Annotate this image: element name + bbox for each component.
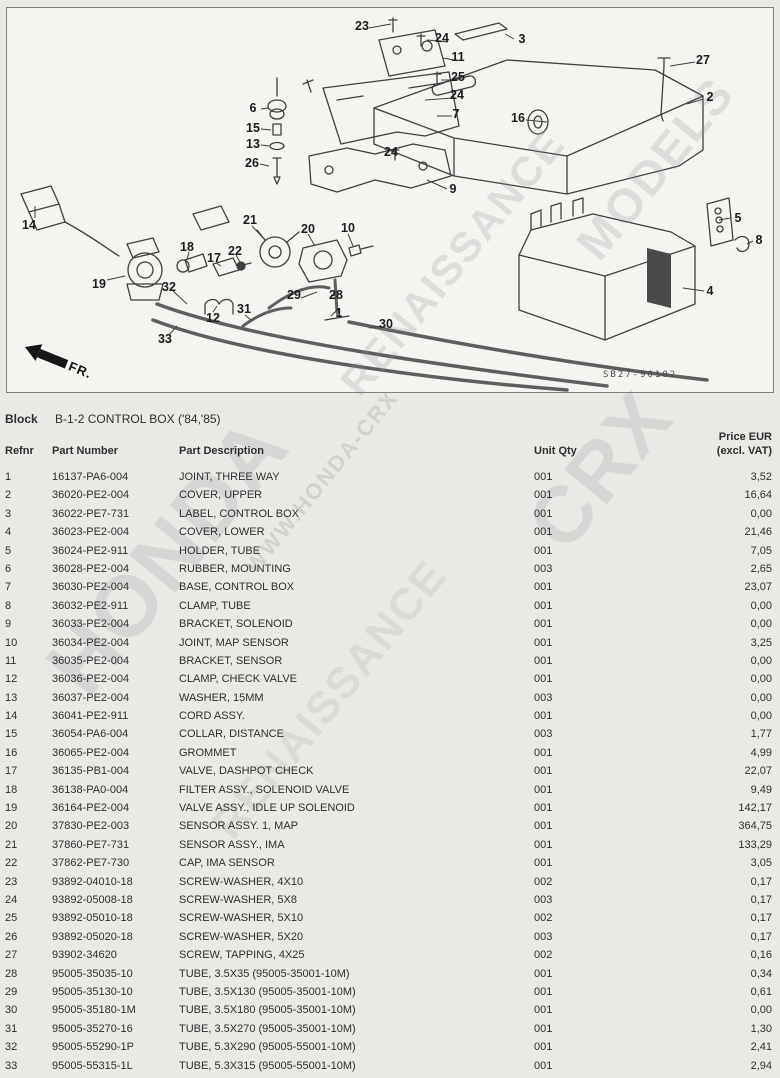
- callout-1: 1: [336, 306, 343, 320]
- cell-part-number: 36034-PE2-004: [52, 634, 179, 652]
- cell-qty: 001: [534, 836, 616, 854]
- cell-price: 21,46: [616, 523, 772, 541]
- cell-qty: 001: [534, 965, 616, 983]
- callout-22: 22: [228, 244, 242, 258]
- callout-5: 5: [735, 211, 742, 225]
- callout-6: 6: [250, 101, 257, 115]
- callout-21: 21: [243, 213, 257, 227]
- cell-part-number: 36032-PE2-911: [52, 597, 179, 615]
- table-row: 33 95005-55315-1L TUBE, 5.3X315 (95005-5…: [5, 1057, 772, 1075]
- table-row: 9 36033-PE2-004 BRACKET, SOLENOID 001 0,…: [5, 615, 772, 633]
- cell-part-number: 95005-55315-1L: [52, 1057, 179, 1075]
- cell-description: BRACKET, SOLENOID: [179, 615, 534, 633]
- cell-part-number: 95005-35180-1M: [52, 1001, 179, 1019]
- table-row: 2 36020-PE2-004 COVER, UPPER 001 16,64: [5, 486, 772, 504]
- cell-refnr: 2: [5, 486, 52, 504]
- cell-price: 0,17: [616, 891, 772, 909]
- cell-part-number: 95005-35130-10: [52, 983, 179, 1001]
- cell-description: SCREW-WASHER, 5X10: [179, 909, 534, 927]
- cell-part-number: 95005-55290-1P: [52, 1038, 179, 1056]
- cell-qty: 003: [534, 891, 616, 909]
- cell-part-number: 16137-PA6-004: [52, 468, 179, 486]
- cell-description: TUBE, 5.3X315 (95005-55001-10M): [179, 1057, 534, 1075]
- cell-description: SCREW, TAPPING, 4X25: [179, 946, 534, 964]
- callout-23: 23: [355, 19, 369, 33]
- header-refnr: Refnr: [5, 444, 52, 458]
- cell-qty: 003: [534, 928, 616, 946]
- cell-part-number: 37860-PE7-731: [52, 836, 179, 854]
- cell-qty: 003: [534, 560, 616, 578]
- cell-qty: 001: [534, 799, 616, 817]
- cell-part-number: 36020-PE2-004: [52, 486, 179, 504]
- cell-price: 0,00: [616, 505, 772, 523]
- table-row: 20 37830-PE2-003 SENSOR ASSY. 1, MAP 001…: [5, 817, 772, 835]
- callout-24: 24: [435, 31, 449, 45]
- cell-price: 133,29: [616, 836, 772, 854]
- callout-12: 12: [206, 311, 220, 325]
- cell-part-number: 36022-PE7-731: [52, 505, 179, 523]
- table-row: 12 36036-PE2-004 CLAMP, CHECK VALVE 001 …: [5, 670, 772, 688]
- cell-price: 3,05: [616, 854, 772, 872]
- cell-qty: 001: [534, 486, 616, 504]
- cell-refnr: 19: [5, 799, 52, 817]
- cell-part-number: 95005-35270-16: [52, 1020, 179, 1038]
- callout-15: 15: [246, 121, 260, 135]
- callout-24: 24: [384, 145, 398, 159]
- cell-refnr: 23: [5, 873, 52, 891]
- cell-description: SCREW-WASHER, 5X8: [179, 891, 534, 909]
- cell-qty: 001: [534, 1020, 616, 1038]
- table-row: 29 95005-35130-10 TUBE, 3.5X130 (95005-3…: [5, 983, 772, 1001]
- cell-price: 9,49: [616, 781, 772, 799]
- cell-qty: 003: [534, 689, 616, 707]
- cell-qty: 001: [534, 1001, 616, 1019]
- cell-part-number: 36035-PE2-004: [52, 652, 179, 670]
- cell-description: SCREW-WASHER, 5X20: [179, 928, 534, 946]
- cell-qty: 001: [534, 615, 616, 633]
- cell-refnr: 14: [5, 707, 52, 725]
- cell-qty: 001: [534, 854, 616, 872]
- cell-qty: 001: [534, 1057, 616, 1075]
- cell-refnr: 15: [5, 725, 52, 743]
- table-row: 26 93892-05020-18 SCREW-WASHER, 5X20 003…: [5, 928, 772, 946]
- cell-qty: 002: [534, 909, 616, 927]
- block-title: B-1-2 CONTROL BOX ('84,'85): [55, 412, 221, 426]
- cell-part-number: 36138-PA0-004: [52, 781, 179, 799]
- cell-refnr: 21: [5, 836, 52, 854]
- cell-price: 2,94: [616, 1057, 772, 1075]
- cell-qty: 001: [534, 634, 616, 652]
- cell-description: JOINT, THREE WAY: [179, 468, 534, 486]
- cell-refnr: 9: [5, 615, 52, 633]
- callout-25: 25: [451, 70, 465, 84]
- cell-qty: 003: [534, 725, 616, 743]
- cell-description: TUBE, 3.5X270 (95005-35001-10M): [179, 1020, 534, 1038]
- cell-qty: 001: [534, 597, 616, 615]
- cell-qty: 002: [534, 873, 616, 891]
- cell-qty: 001: [534, 578, 616, 596]
- cell-refnr: 4: [5, 523, 52, 541]
- cell-part-number: 36033-PE2-004: [52, 615, 179, 633]
- header-price-line2: (excl. VAT): [616, 444, 772, 458]
- callout-9: 9: [450, 182, 457, 196]
- callout-20: 20: [301, 222, 315, 236]
- callout-18: 18: [180, 240, 194, 254]
- table-row: 32 95005-55290-1P TUBE, 5.3X290 (95005-5…: [5, 1038, 772, 1056]
- cell-refnr: 5: [5, 542, 52, 560]
- callout-4: 4: [707, 284, 714, 298]
- table-row: 17 36135-PB1-004 VALVE, DASHPOT CHECK 00…: [5, 762, 772, 780]
- cell-description: JOINT, MAP SENSOR: [179, 634, 534, 652]
- cell-part-number: 93892-05020-18: [52, 928, 179, 946]
- cell-description: TUBE, 3.5X130 (95005-35001-10M): [179, 983, 534, 1001]
- header-part-number: Part Number: [52, 444, 179, 458]
- cell-refnr: 6: [5, 560, 52, 578]
- table-row: 5 36024-PE2-911 HOLDER, TUBE 001 7,05: [5, 542, 772, 560]
- table-row: 31 95005-35270-16 TUBE, 3.5X270 (95005-3…: [5, 1020, 772, 1038]
- cell-price: 16,64: [616, 486, 772, 504]
- cell-part-number: 36037-PE2-004: [52, 689, 179, 707]
- cell-refnr: 28: [5, 965, 52, 983]
- cell-refnr: 10: [5, 634, 52, 652]
- block-title-line: Block B-1-2 CONTROL BOX ('84,'85): [5, 412, 221, 426]
- cell-description: VALVE, DASHPOT CHECK: [179, 762, 534, 780]
- cell-refnr: 33: [5, 1057, 52, 1075]
- table-row: 28 95005-35035-10 TUBE, 3.5X35 (95005-35…: [5, 965, 772, 983]
- cell-price: 0,17: [616, 873, 772, 891]
- cell-part-number: 95005-35035-10: [52, 965, 179, 983]
- table-row: 4 36023-PE2-004 COVER, LOWER 001 21,46: [5, 523, 772, 541]
- cell-part-number: 37862-PE7-730: [52, 854, 179, 872]
- diagram-code: SB27-90102: [603, 370, 677, 380]
- header-price: Price EUR (excl. VAT): [616, 430, 772, 458]
- cell-description: SENSOR ASSY., IMA: [179, 836, 534, 854]
- parts-diagram: MODELSRENAISSANCECRXWWW.HONDA-CRXHONDARE…: [6, 7, 774, 393]
- cell-qty: 001: [534, 707, 616, 725]
- table-row: 30 95005-35180-1M TUBE, 3.5X180 (95005-3…: [5, 1001, 772, 1019]
- cell-description: GROMMET: [179, 744, 534, 762]
- callout-26: 26: [245, 156, 259, 170]
- cell-qty: 002: [534, 946, 616, 964]
- cell-refnr: 16: [5, 744, 52, 762]
- cell-part-number: 36024-PE2-911: [52, 542, 179, 560]
- callout-11: 11: [451, 50, 464, 64]
- cell-part-number: 36023-PE2-004: [52, 523, 179, 541]
- parts-table-body: 1 16137-PA6-004 JOINT, THREE WAY 001 3,5…: [5, 468, 772, 1075]
- cell-description: SCREW-WASHER, 4X10: [179, 873, 534, 891]
- cell-refnr: 29: [5, 983, 52, 1001]
- cell-description: TUBE, 5.3X290 (95005-55001-10M): [179, 1038, 534, 1056]
- cell-price: 7,05: [616, 542, 772, 560]
- cell-description: SENSOR ASSY. 1, MAP: [179, 817, 534, 835]
- header-price-line1: Price EUR: [616, 430, 772, 444]
- header-description: Part Description: [179, 444, 534, 458]
- table-row: 7 36030-PE2-004 BASE, CONTROL BOX 001 23…: [5, 578, 772, 596]
- cell-price: 23,07: [616, 578, 772, 596]
- callout-30: 30: [379, 317, 393, 331]
- callout-2: 2: [707, 90, 714, 104]
- table-row: 14 36041-PE2-911 CORD ASSY. 001 0,00: [5, 707, 772, 725]
- cell-price: 0,00: [616, 707, 772, 725]
- cell-part-number: 36164-PE2-004: [52, 799, 179, 817]
- callout-17: 17: [207, 251, 221, 265]
- cell-description: COVER, LOWER: [179, 523, 534, 541]
- callout-29: 29: [287, 288, 301, 302]
- exploded-view-drawing: [7, 8, 773, 392]
- cell-refnr: 7: [5, 578, 52, 596]
- cell-refnr: 17: [5, 762, 52, 780]
- cell-price: 1,77: [616, 725, 772, 743]
- cell-price: 1,30: [616, 1020, 772, 1038]
- cell-part-number: 36135-PB1-004: [52, 762, 179, 780]
- table-row: 13 36037-PE2-004 WASHER, 15MM 003 0,00: [5, 689, 772, 707]
- cell-qty: 001: [534, 1038, 616, 1056]
- cell-refnr: 13: [5, 689, 52, 707]
- table-row: 1 16137-PA6-004 JOINT, THREE WAY 001 3,5…: [5, 468, 772, 486]
- cell-description: CAP, IMA SENSOR: [179, 854, 534, 872]
- callout-8: 8: [756, 233, 763, 247]
- table-row: 3 36022-PE7-731 LABEL, CONTROL BOX 001 0…: [5, 505, 772, 523]
- cell-description: TUBE, 3.5X180 (95005-35001-10M): [179, 1001, 534, 1019]
- cell-price: 3,52: [616, 468, 772, 486]
- cell-description: HOLDER, TUBE: [179, 542, 534, 560]
- cell-qty: 001: [534, 468, 616, 486]
- table-row: 18 36138-PA0-004 FILTER ASSY., SOLENOID …: [5, 781, 772, 799]
- cell-part-number: 36028-PE2-004: [52, 560, 179, 578]
- callout-24: 24: [450, 88, 464, 102]
- cell-description: CLAMP, CHECK VALVE: [179, 670, 534, 688]
- cell-description: CORD ASSY.: [179, 707, 534, 725]
- cell-price: 3,25: [616, 634, 772, 652]
- table-row: 25 93892-05010-18 SCREW-WASHER, 5X10 002…: [5, 909, 772, 927]
- callout-16: 16: [511, 111, 525, 125]
- cell-price: 0,61: [616, 983, 772, 1001]
- cell-refnr: 25: [5, 909, 52, 927]
- table-row: 10 36034-PE2-004 JOINT, MAP SENSOR 001 3…: [5, 634, 772, 652]
- cell-description: TUBE, 3.5X35 (95005-35001-10M): [179, 965, 534, 983]
- cell-price: 364,75: [616, 817, 772, 835]
- cell-price: 0,00: [616, 615, 772, 633]
- cell-price: 22,07: [616, 762, 772, 780]
- callout-31: 31: [237, 302, 251, 316]
- cell-price: 0,00: [616, 597, 772, 615]
- callout-3: 3: [519, 32, 526, 46]
- callout-33: 33: [158, 332, 172, 346]
- cell-description: COLLAR, DISTANCE: [179, 725, 534, 743]
- cell-refnr: 26: [5, 928, 52, 946]
- cell-refnr: 22: [5, 854, 52, 872]
- cell-refnr: 1: [5, 468, 52, 486]
- cell-description: BRACKET, SENSOR: [179, 652, 534, 670]
- cell-refnr: 31: [5, 1020, 52, 1038]
- cell-price: 2,65: [616, 560, 772, 578]
- callout-27: 27: [696, 53, 710, 67]
- cell-refnr: 24: [5, 891, 52, 909]
- cell-part-number: 36054-PA6-004: [52, 725, 179, 743]
- cell-qty: 001: [534, 983, 616, 1001]
- table-row: 16 36065-PE2-004 GROMMET 001 4,99: [5, 744, 772, 762]
- table-row: 6 36028-PE2-004 RUBBER, MOUNTING 003 2,6…: [5, 560, 772, 578]
- cell-description: FILTER ASSY., SOLENOID VALVE: [179, 781, 534, 799]
- cell-refnr: 27: [5, 946, 52, 964]
- table-row: 8 36032-PE2-911 CLAMP, TUBE 001 0,00: [5, 597, 772, 615]
- cell-part-number: 37830-PE2-003: [52, 817, 179, 835]
- cell-refnr: 18: [5, 781, 52, 799]
- callout-19: 19: [92, 277, 106, 291]
- block-label: Block: [5, 412, 38, 426]
- cell-qty: 001: [534, 652, 616, 670]
- cell-refnr: 3: [5, 505, 52, 523]
- cell-qty: 001: [534, 505, 616, 523]
- table-row: 22 37862-PE7-730 CAP, IMA SENSOR 001 3,0…: [5, 854, 772, 872]
- cell-qty: 001: [534, 817, 616, 835]
- cell-part-number: 36030-PE2-004: [52, 578, 179, 596]
- cell-qty: 001: [534, 762, 616, 780]
- cell-qty: 001: [534, 523, 616, 541]
- table-row: 21 37860-PE7-731 SENSOR ASSY., IMA 001 1…: [5, 836, 772, 854]
- cell-price: 0,00: [616, 1001, 772, 1019]
- table-row: 15 36054-PA6-004 COLLAR, DISTANCE 003 1,…: [5, 725, 772, 743]
- cell-price: 0,34: [616, 965, 772, 983]
- cell-price: 0,17: [616, 909, 772, 927]
- cell-part-number: 36041-PE2-911: [52, 707, 179, 725]
- callout-32: 32: [162, 280, 176, 294]
- cell-part-number: 36065-PE2-004: [52, 744, 179, 762]
- cell-price: 142,17: [616, 799, 772, 817]
- cell-description: CLAMP, TUBE: [179, 597, 534, 615]
- header-qty: Unit Qty: [534, 444, 616, 458]
- cell-qty: 001: [534, 781, 616, 799]
- callout-13: 13: [246, 137, 260, 151]
- table-header-row: Refnr Part Number Part Description Unit …: [5, 430, 772, 458]
- cell-price: 0,00: [616, 652, 772, 670]
- cell-description: BASE, CONTROL BOX: [179, 578, 534, 596]
- cell-refnr: 30: [5, 1001, 52, 1019]
- cell-part-number: 93892-04010-18: [52, 873, 179, 891]
- callout-7: 7: [453, 107, 460, 121]
- cell-qty: 001: [534, 670, 616, 688]
- table-row: 27 93902-34620 SCREW, TAPPING, 4X25 002 …: [5, 946, 772, 964]
- cell-price: 0,17: [616, 928, 772, 946]
- cell-refnr: 12: [5, 670, 52, 688]
- cell-qty: 001: [534, 744, 616, 762]
- table-row: 11 36035-PE2-004 BRACKET, SENSOR 001 0,0…: [5, 652, 772, 670]
- cell-description: LABEL, CONTROL BOX: [179, 505, 534, 523]
- parts-table: Refnr Part Number Part Description Unit …: [5, 430, 772, 1075]
- cell-price: 0,00: [616, 670, 772, 688]
- callout-10: 10: [341, 221, 355, 235]
- cell-part-number: 93902-34620: [52, 946, 179, 964]
- cell-description: VALVE ASSY., IDLE UP SOLENOID: [179, 799, 534, 817]
- callout-28: 28: [329, 288, 343, 302]
- cell-refnr: 20: [5, 817, 52, 835]
- cell-part-number: 93892-05008-18: [52, 891, 179, 909]
- cell-price: 0,00: [616, 689, 772, 707]
- cell-description: COVER, UPPER: [179, 486, 534, 504]
- table-row: 23 93892-04010-18 SCREW-WASHER, 4X10 002…: [5, 873, 772, 891]
- cell-refnr: 8: [5, 597, 52, 615]
- callout-14: 14: [22, 218, 36, 232]
- cell-refnr: 32: [5, 1038, 52, 1056]
- cell-price: 4,99: [616, 744, 772, 762]
- table-row: 24 93892-05008-18 SCREW-WASHER, 5X8 003 …: [5, 891, 772, 909]
- cell-part-number: 93892-05010-18: [52, 909, 179, 927]
- cell-price: 2,41: [616, 1038, 772, 1056]
- cell-description: WASHER, 15MM: [179, 689, 534, 707]
- cell-part-number: 36036-PE2-004: [52, 670, 179, 688]
- cell-description: RUBBER, MOUNTING: [179, 560, 534, 578]
- table-row: 19 36164-PE2-004 VALVE ASSY., IDLE UP SO…: [5, 799, 772, 817]
- cell-price: 0,16: [616, 946, 772, 964]
- cell-qty: 001: [534, 542, 616, 560]
- cell-refnr: 11: [5, 652, 52, 670]
